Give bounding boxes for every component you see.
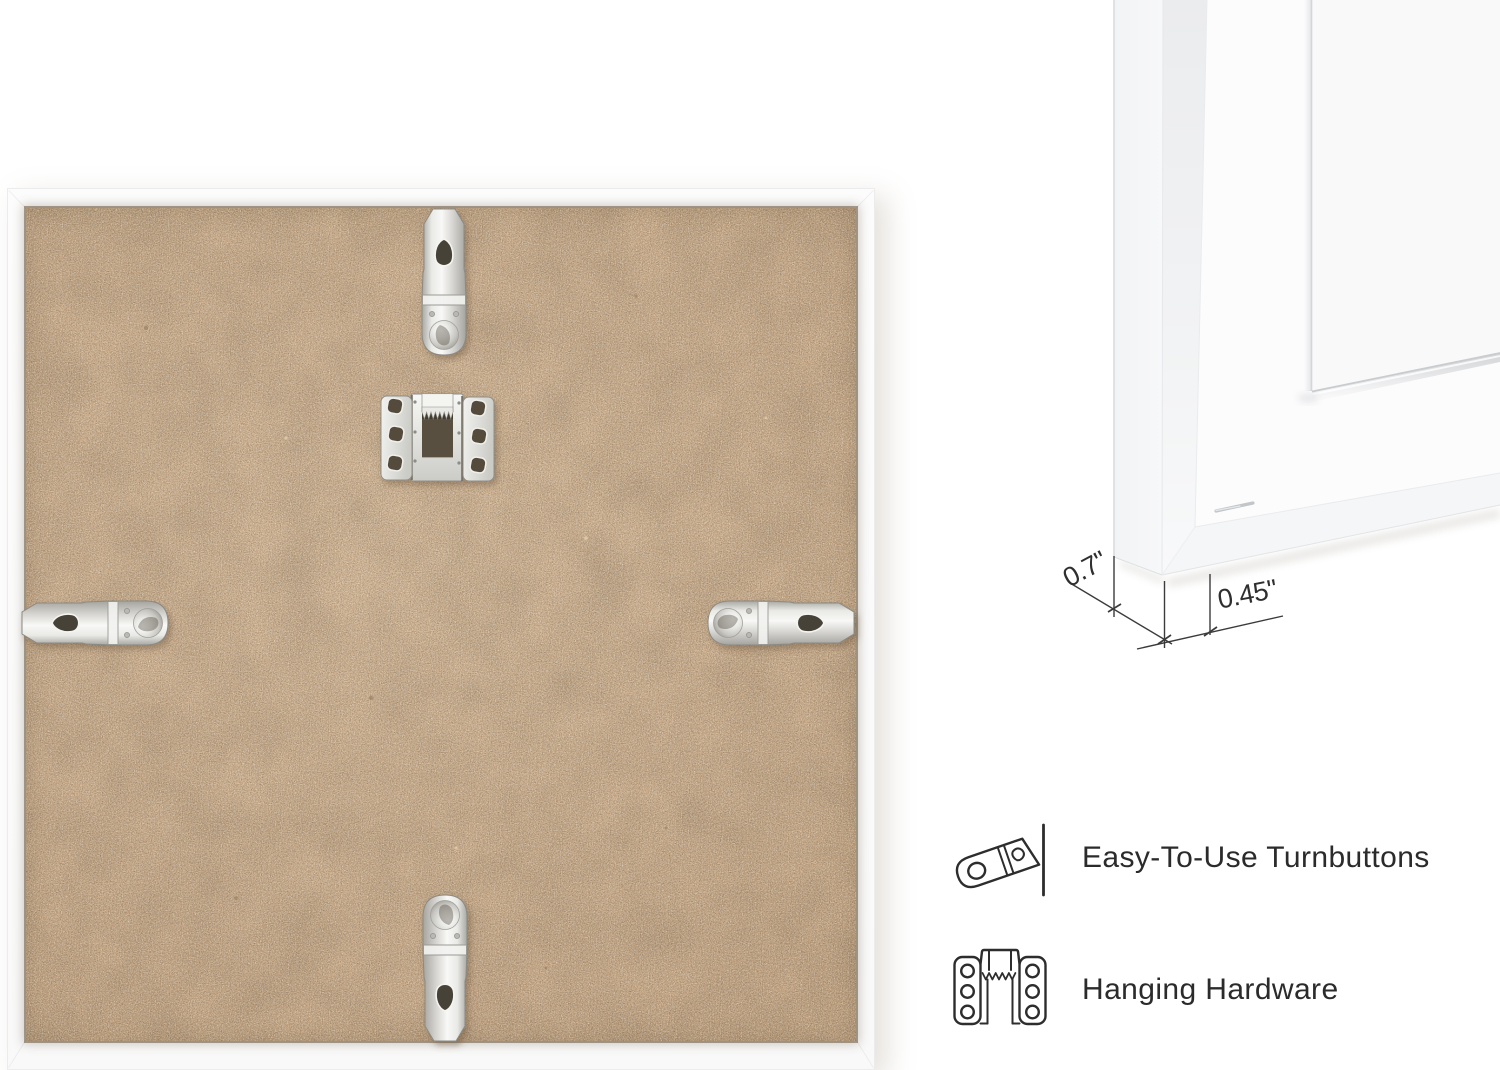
frame-back-photo — [7, 188, 875, 1070]
hanging-hardware-icon — [952, 946, 1048, 1030]
frame-corner-profile-photo: 0.7" 0.45" — [1040, 0, 1500, 700]
frame-side-face — [1114, 0, 1163, 575]
product-image-canvas: 0.7" 0.45" Easy-To-Use Turnbuttons — [0, 0, 1500, 1070]
turnbutton-icon — [948, 820, 1048, 900]
turnbutton-bottom — [423, 895, 467, 1041]
dimension-face-label: 0.45" — [1215, 574, 1279, 615]
sawtooth-hanger — [381, 394, 494, 481]
artwork-area — [1311, 0, 1500, 392]
hardware-layer — [8, 189, 876, 1070]
feature-label-hanging-hardware: Hanging Hardware — [1082, 971, 1339, 1009]
turnbutton-left — [22, 601, 168, 645]
turnbutton-top — [422, 209, 466, 355]
feature-label-turnbuttons: Easy-To-Use Turnbuttons — [1082, 839, 1430, 877]
dimension-depth-label: 0.7" — [1058, 545, 1112, 593]
turnbutton-right — [708, 601, 854, 645]
